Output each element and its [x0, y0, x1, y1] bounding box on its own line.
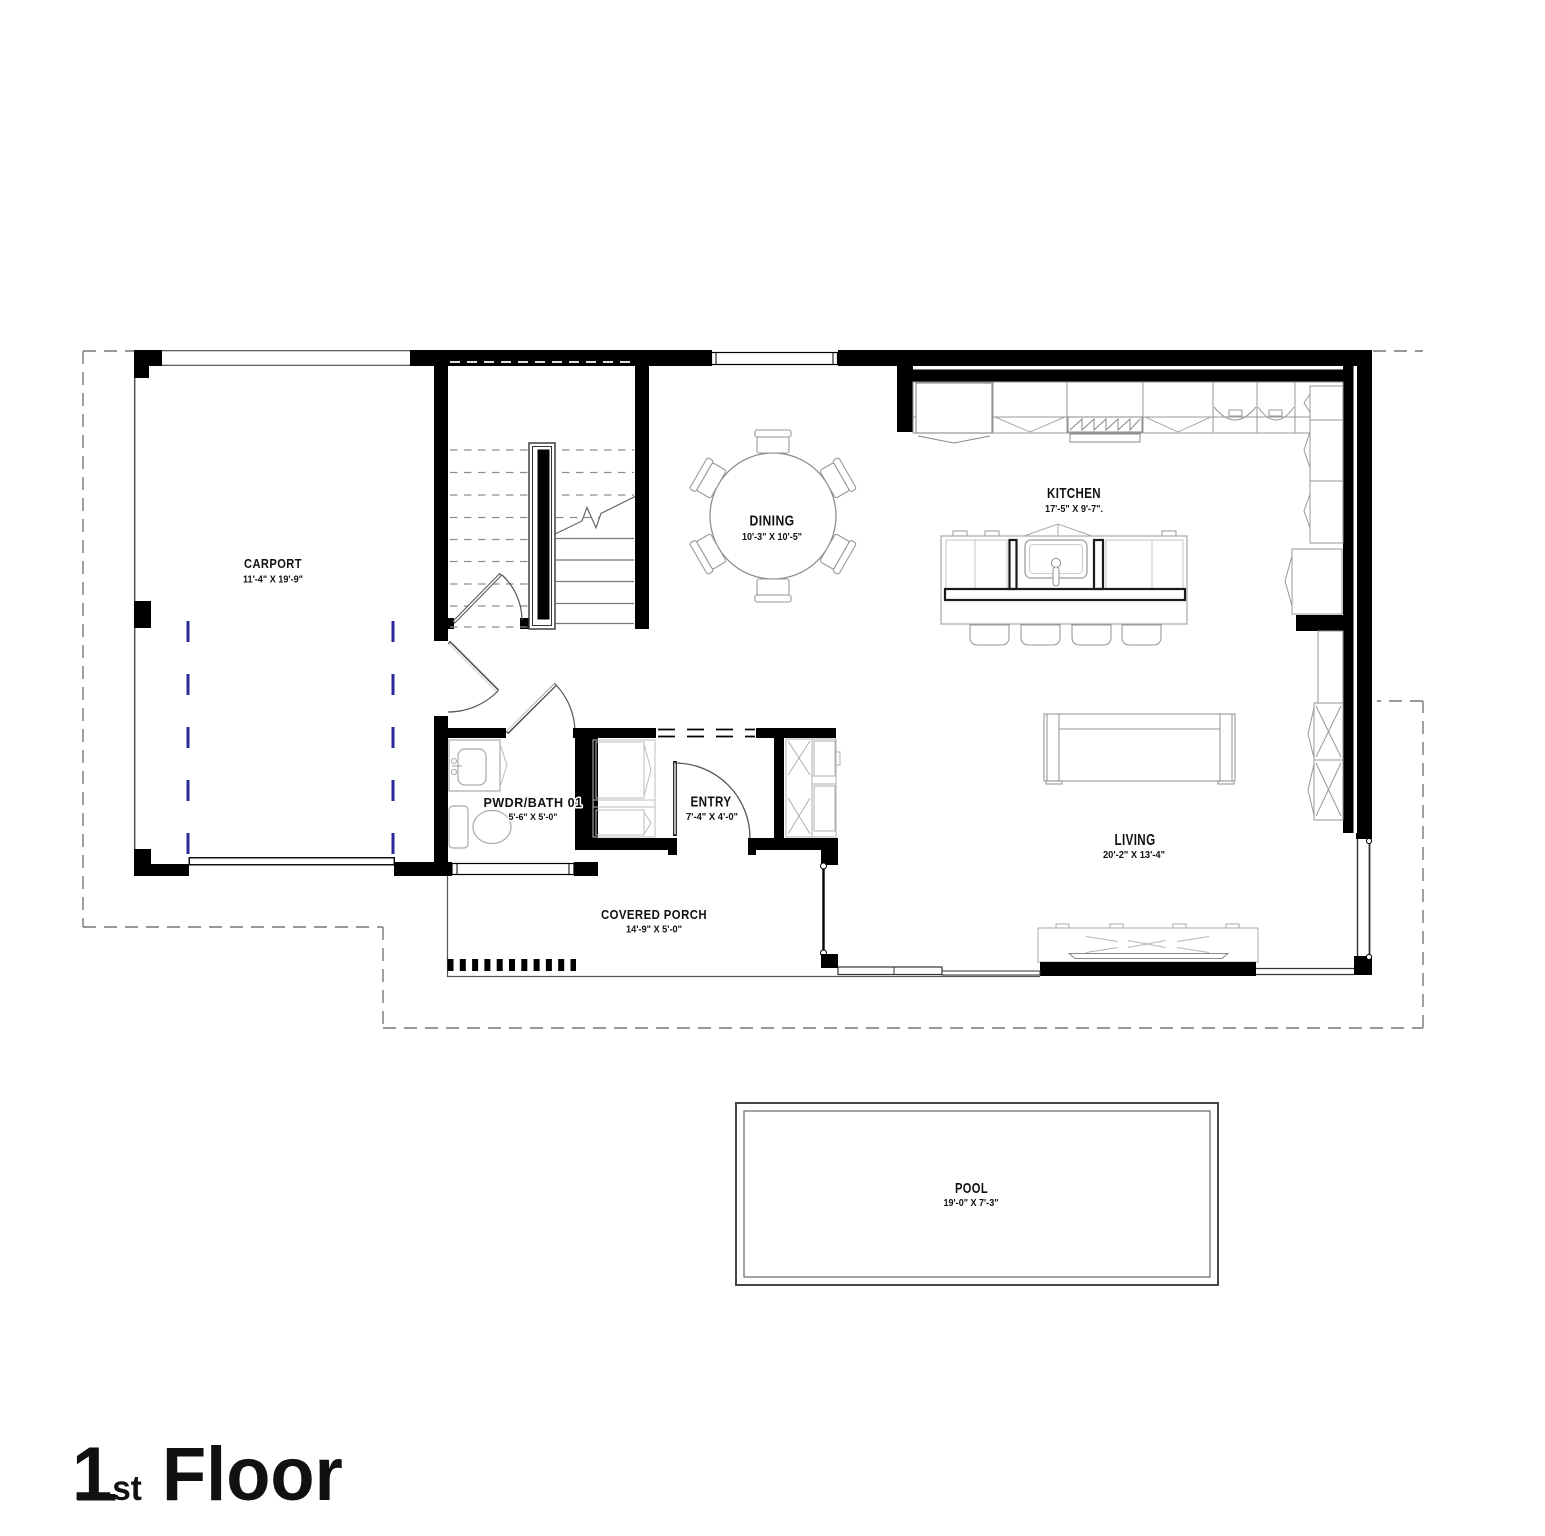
svg-text:7'-4" X 4'-0": 7'-4" X 4'-0" — [686, 812, 738, 823]
svg-text:19'-0" X 7'-3": 19'-0" X 7'-3" — [944, 1198, 999, 1209]
svg-text:17'-5" X 9'-7".: 17'-5" X 9'-7". — [1045, 504, 1103, 515]
svg-text:DINING: DINING — [750, 513, 795, 530]
svg-text:14'-9" X 5'-0": 14'-9" X 5'-0" — [626, 925, 682, 936]
svg-text:11'-4" X 19'-9": 11'-4" X 19'-9" — [243, 575, 303, 586]
svg-text:20'-2" X 13'-4": 20'-2" X 13'-4" — [1103, 850, 1165, 861]
svg-text:10'-3" X 10'-5": 10'-3" X 10'-5" — [742, 532, 802, 543]
svg-text:KITCHEN: KITCHEN — [1047, 485, 1101, 502]
svg-text:CARPORT: CARPORT — [244, 556, 302, 571]
svg-text:5'-6" X 5'-0": 5'-6" X 5'-0" — [509, 812, 558, 822]
svg-text:ENTRY: ENTRY — [691, 795, 732, 811]
svg-text:POOL: POOL — [955, 1180, 988, 1197]
svg-text:LIVING: LIVING — [1115, 832, 1156, 849]
svg-text:PWDR/BATH 01: PWDR/BATH 01 — [484, 795, 583, 810]
svg-text:COVERED PORCH: COVERED PORCH — [601, 907, 707, 922]
